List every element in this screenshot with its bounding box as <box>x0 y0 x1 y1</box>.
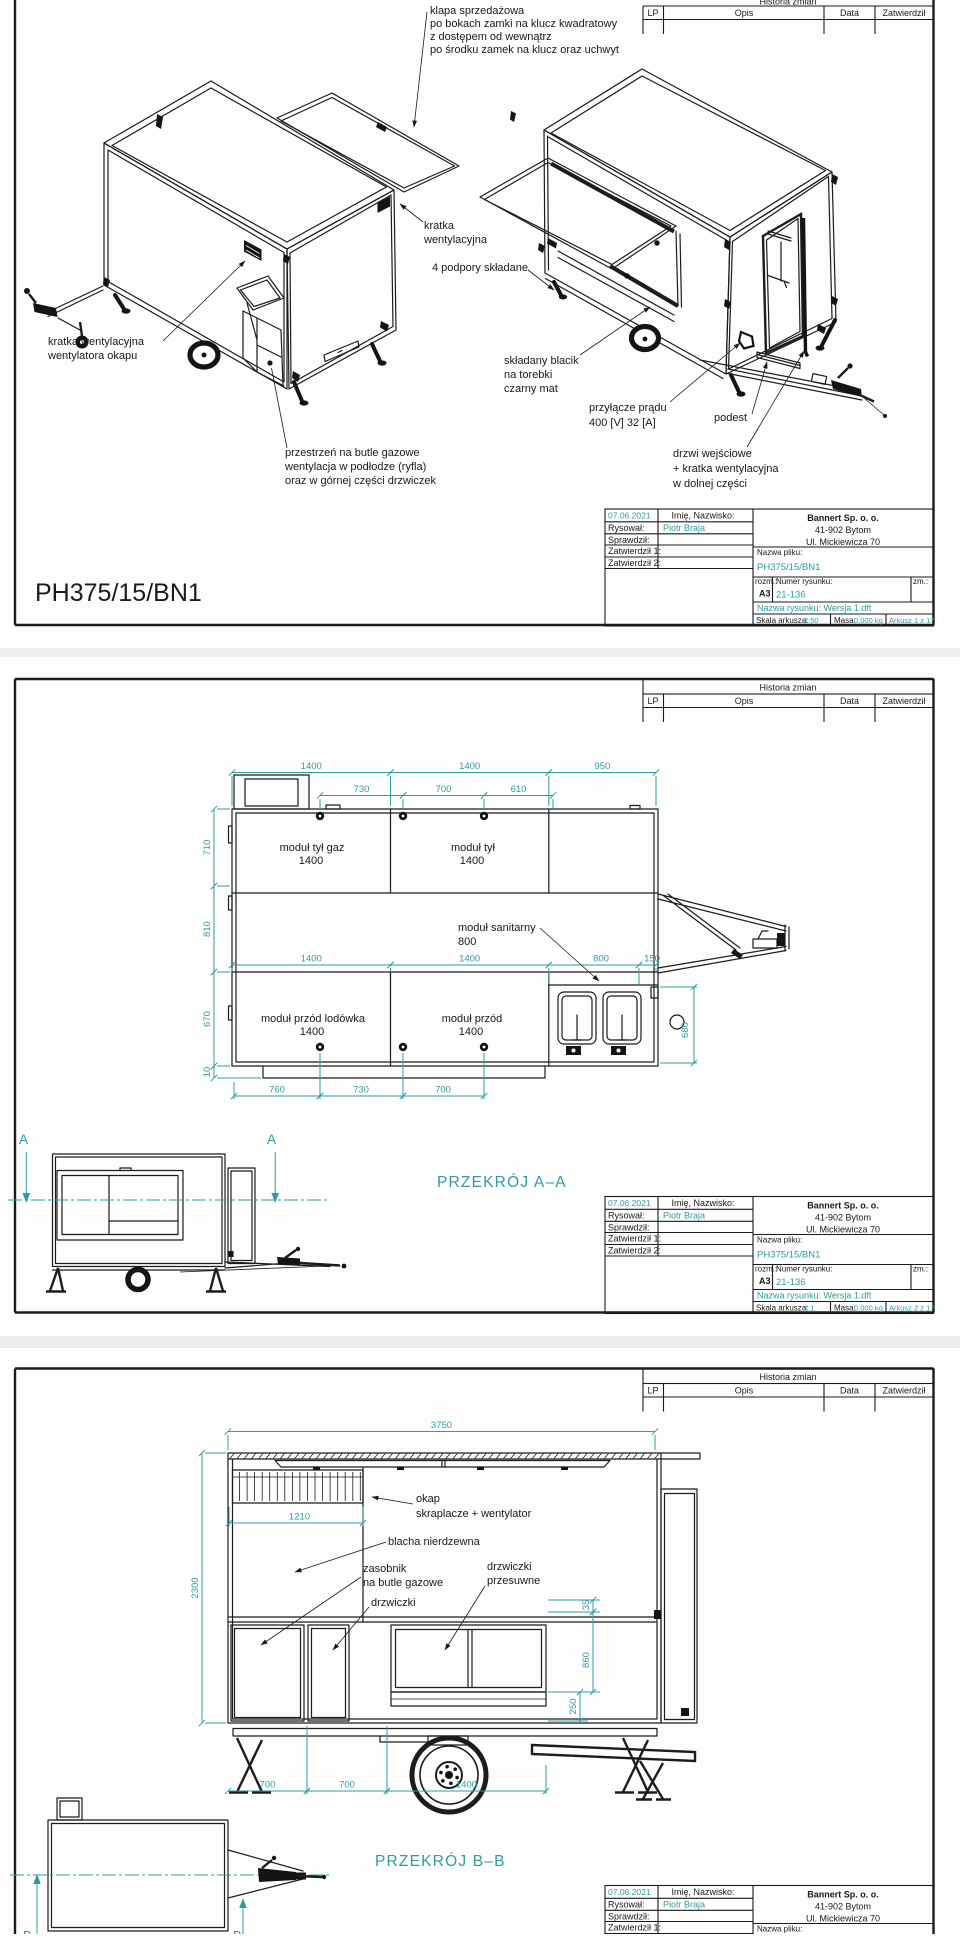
svg-text:41-902 Bytom: 41-902 Bytom <box>815 525 871 535</box>
svg-text:1400: 1400 <box>459 761 480 772</box>
svg-text:07.06.2021: 07.06.2021 <box>608 1198 651 1208</box>
svg-text:Zatwierdził 2:: Zatwierdził 2: <box>608 1246 661 1256</box>
svg-text:Zatwierdził 2:: Zatwierdził 2: <box>608 558 661 568</box>
svg-text:Masa:: Masa: <box>834 616 856 625</box>
svg-text:Nazwa pliku:: Nazwa pliku: <box>757 548 802 557</box>
svg-text:10: 10 <box>202 1067 213 1078</box>
svg-text:Skala arkusza:: Skala arkusza: <box>756 616 808 625</box>
svg-text:na torebki: na torebki <box>504 369 552 381</box>
svg-text:LP: LP <box>647 696 658 706</box>
svg-text:3750: 3750 <box>431 1420 452 1431</box>
svg-text:A: A <box>267 1132 276 1147</box>
svg-text:1400: 1400 <box>459 954 480 965</box>
svg-text:1400: 1400 <box>456 1780 477 1791</box>
svg-text:21-136: 21-136 <box>776 590 806 601</box>
svg-text:A: A <box>19 1132 28 1147</box>
svg-text:760: 760 <box>269 1085 285 1096</box>
svg-text:wentylatora okapu: wentylatora okapu <box>47 350 137 362</box>
svg-text:150: 150 <box>644 954 660 965</box>
svg-text:czarny mat: czarny mat <box>504 383 558 395</box>
svg-text:950: 950 <box>594 761 610 772</box>
svg-text:Numer rysunku:: Numer rysunku: <box>776 577 832 586</box>
svg-text:35: 35 <box>581 1600 592 1611</box>
svg-text:Zatwierdził: Zatwierdził <box>882 1386 925 1396</box>
svg-text:Zatwierdził: Zatwierdził <box>882 696 925 706</box>
svg-text:A3: A3 <box>759 589 771 599</box>
svg-text:Rysował:: Rysował: <box>608 523 645 533</box>
svg-text:zasobnik: zasobnik <box>363 1563 407 1575</box>
svg-text:Ul. Mickiewicza 70: Ul. Mickiewicza 70 <box>806 537 880 547</box>
svg-text:41-902 Bytom: 41-902 Bytom <box>815 1213 871 1223</box>
svg-text:składany blacik: składany blacik <box>504 355 579 367</box>
svg-text:Bannert Sp. o. o.: Bannert Sp. o. o. <box>807 1890 879 1900</box>
svg-text:Ul. Mickiewicza 70: Ul. Mickiewicza 70 <box>806 1914 880 1924</box>
svg-text:blacha nierdzewna: blacha nierdzewna <box>388 1536 481 1548</box>
svg-text:4 podpory składane: 4 podpory składane <box>432 262 528 274</box>
svg-text:moduł tył: moduł tył <box>451 842 496 854</box>
svg-text:B: B <box>23 1928 32 1934</box>
svg-text:800: 800 <box>593 954 609 965</box>
svg-text:Historia zmian: Historia zmian <box>759 1372 816 1382</box>
svg-text:700: 700 <box>435 1085 451 1096</box>
svg-text:z dostępem od wewnątrz: z dostępem od wewnątrz <box>430 31 552 43</box>
svg-text:800: 800 <box>458 936 476 948</box>
svg-text:A3: A3 <box>759 1276 771 1286</box>
svg-text:Piotr Braja: Piotr Braja <box>663 1211 705 1221</box>
svg-text:07.06.2021: 07.06.2021 <box>608 511 651 521</box>
svg-text:oraz w górnej części drzwiczek: oraz w górnej części drzwiczek <box>285 475 436 487</box>
svg-text:1400: 1400 <box>300 1026 324 1038</box>
svg-text:Ul. Mickiewicza 70: Ul. Mickiewicza 70 <box>806 1225 880 1235</box>
svg-text:kratka: kratka <box>424 220 455 232</box>
svg-text:1210: 1210 <box>289 1512 310 1523</box>
svg-text:drzwiczki: drzwiczki <box>371 1597 416 1609</box>
svg-text:Opis: Opis <box>735 1386 754 1396</box>
svg-text:rozm.:: rozm.: <box>755 1265 777 1274</box>
svg-text:1400: 1400 <box>460 855 484 867</box>
svg-text:kratka wentylacyjna: kratka wentylacyjna <box>48 336 145 348</box>
svg-text:Rysował:: Rysował: <box>608 1210 645 1220</box>
svg-text:Masa:: Masa: <box>834 1304 856 1313</box>
svg-text:610: 610 <box>511 784 527 795</box>
svg-text:730: 730 <box>353 1085 369 1096</box>
svg-text:Arkusz 1 z 17: Arkusz 1 z 17 <box>889 616 934 625</box>
svg-text:Piotr Braja: Piotr Braja <box>663 523 705 533</box>
svg-text:Nazwa pliku:: Nazwa pliku: <box>757 1925 802 1934</box>
svg-text:670: 670 <box>202 1011 213 1027</box>
svg-text:0,000 kg: 0,000 kg <box>854 1304 883 1313</box>
svg-text:Opis: Opis <box>735 696 754 706</box>
svg-text:Imię, Nazwisko:: Imię, Nazwisko: <box>671 1198 734 1208</box>
svg-text:PH375/15/BN1: PH375/15/BN1 <box>757 1250 820 1261</box>
svg-text:Numer rysunku:: Numer rysunku: <box>776 1265 832 1274</box>
svg-text:1:1: 1:1 <box>804 1304 814 1313</box>
svg-text:700: 700 <box>339 1780 355 1791</box>
svg-text:moduł przód lodówka: moduł przód lodówka <box>261 1013 366 1025</box>
svg-text:Piotr Braja: Piotr Braja <box>663 1900 705 1910</box>
svg-text:Bannert Sp. o. o.: Bannert Sp. o. o. <box>807 1201 879 1211</box>
svg-text:moduł sanitarny: moduł sanitarny <box>458 922 536 934</box>
svg-text:Data: Data <box>840 696 859 706</box>
svg-text:Skala arkusza:: Skala arkusza: <box>756 1304 808 1313</box>
svg-text:680: 680 <box>680 1022 691 1038</box>
svg-text:przesuwne: przesuwne <box>487 1575 540 1587</box>
svg-text:zm.:: zm.: <box>913 577 928 586</box>
svg-text:Data: Data <box>840 1386 859 1396</box>
svg-text:Data: Data <box>840 8 859 18</box>
svg-text:przyłącze prądu: przyłącze prądu <box>589 402 667 414</box>
svg-text:skraplacze + wentylator: skraplacze + wentylator <box>416 1508 532 1520</box>
svg-text:PH375/15/BN1: PH375/15/BN1 <box>35 579 202 607</box>
svg-text:po środku zamek na klucz oraz: po środku zamek na klucz oraz uchwyt <box>430 44 619 56</box>
svg-text:PRZEKRÓJ A–A: PRZEKRÓJ A–A <box>437 1174 567 1191</box>
svg-text:Nazwa rysunku: Wersja 1.dft: Nazwa rysunku: Wersja 1.dft <box>757 603 872 613</box>
svg-text:moduł tył gaz: moduł tył gaz <box>280 842 345 854</box>
svg-text:LP: LP <box>647 8 658 18</box>
svg-text:21-136: 21-136 <box>776 1277 806 1288</box>
svg-text:1400: 1400 <box>299 855 323 867</box>
svg-text:zm.:: zm.: <box>913 1265 928 1274</box>
svg-text:Bannert Sp. o. o.: Bannert Sp. o. o. <box>807 513 879 523</box>
svg-text:Imię, Nazwisko:: Imię, Nazwisko: <box>671 511 734 521</box>
svg-text:2300: 2300 <box>190 1577 201 1598</box>
svg-text:810: 810 <box>202 921 213 937</box>
svg-text:730: 730 <box>354 784 370 795</box>
svg-text:0,000 kg: 0,000 kg <box>854 616 883 625</box>
svg-text:400 [V] 32 [A]: 400 [V] 32 [A] <box>589 417 656 429</box>
svg-text:rozm.:: rozm.: <box>755 577 777 586</box>
svg-text:na butle gazowe: na butle gazowe <box>363 1577 443 1589</box>
svg-text:1:50: 1:50 <box>804 616 819 625</box>
svg-text:860: 860 <box>581 1652 592 1668</box>
svg-text:Zatwierdził 1:: Zatwierdził 1: <box>608 1923 661 1933</box>
svg-text:PH375/15/BN1: PH375/15/BN1 <box>757 562 820 573</box>
svg-text:drzwiczki: drzwiczki <box>487 1561 532 1573</box>
svg-text:LP: LP <box>647 1386 658 1396</box>
svg-text:wentylacyjna: wentylacyjna <box>423 234 488 246</box>
svg-text:250: 250 <box>568 1699 579 1715</box>
svg-text:+ kratka wentylacyjna: + kratka wentylacyjna <box>673 463 779 475</box>
svg-text:moduł przód: moduł przód <box>442 1013 503 1025</box>
svg-text:1400: 1400 <box>459 1026 483 1038</box>
svg-text:wentylacja w podłodze (ryfla): wentylacja w podłodze (ryfla) <box>284 461 426 473</box>
svg-text:przestrzeń na butle gazowe: przestrzeń na butle gazowe <box>285 447 420 459</box>
svg-text:Zatwierdził 1:: Zatwierdził 1: <box>608 546 661 556</box>
svg-text:41-902 Bytom: 41-902 Bytom <box>815 1902 871 1912</box>
svg-text:Opis: Opis <box>735 8 754 18</box>
svg-text:Imię, Nazwisko:: Imię, Nazwisko: <box>671 1887 734 1897</box>
svg-text:klapa sprzedażowa: klapa sprzedażowa <box>430 5 525 17</box>
svg-text:Zatwierdził: Zatwierdził <box>882 8 925 18</box>
svg-text:700: 700 <box>260 1780 276 1791</box>
svg-text:710: 710 <box>202 840 213 856</box>
svg-text:Sprawdził:: Sprawdził: <box>608 1911 650 1921</box>
svg-text:Rysował:: Rysował: <box>608 1899 645 1909</box>
svg-text:Arkusz 2 z 17: Arkusz 2 z 17 <box>889 1304 934 1313</box>
svg-text:drzwi wejściowe: drzwi wejściowe <box>673 448 752 460</box>
svg-text:07.06.2021: 07.06.2021 <box>608 1887 651 1897</box>
svg-text:Zatwierdził 1:: Zatwierdził 1: <box>608 1234 661 1244</box>
svg-text:okap: okap <box>416 1493 440 1505</box>
svg-text:1400: 1400 <box>301 954 322 965</box>
svg-text:PRZEKRÓJ B–B: PRZEKRÓJ B–B <box>375 1853 506 1870</box>
svg-text:B: B <box>233 1928 242 1934</box>
svg-text:Sprawdził:: Sprawdził: <box>608 535 650 545</box>
svg-text:podest: podest <box>714 412 747 424</box>
svg-text:Nazwa rysunku: Wersja 1.dft: Nazwa rysunku: Wersja 1.dft <box>757 1291 872 1301</box>
svg-text:700: 700 <box>436 784 452 795</box>
svg-text:1400: 1400 <box>301 761 322 772</box>
svg-text:Sprawdził:: Sprawdził: <box>608 1222 650 1232</box>
svg-text:po bokach zamki na klucz kwadr: po bokach zamki na klucz kwadratowy <box>430 18 618 30</box>
svg-text:Historia zmian: Historia zmian <box>759 683 816 693</box>
svg-text:w dolnej części: w dolnej części <box>672 478 747 490</box>
svg-text:Nazwa pliku:: Nazwa pliku: <box>757 1236 802 1245</box>
